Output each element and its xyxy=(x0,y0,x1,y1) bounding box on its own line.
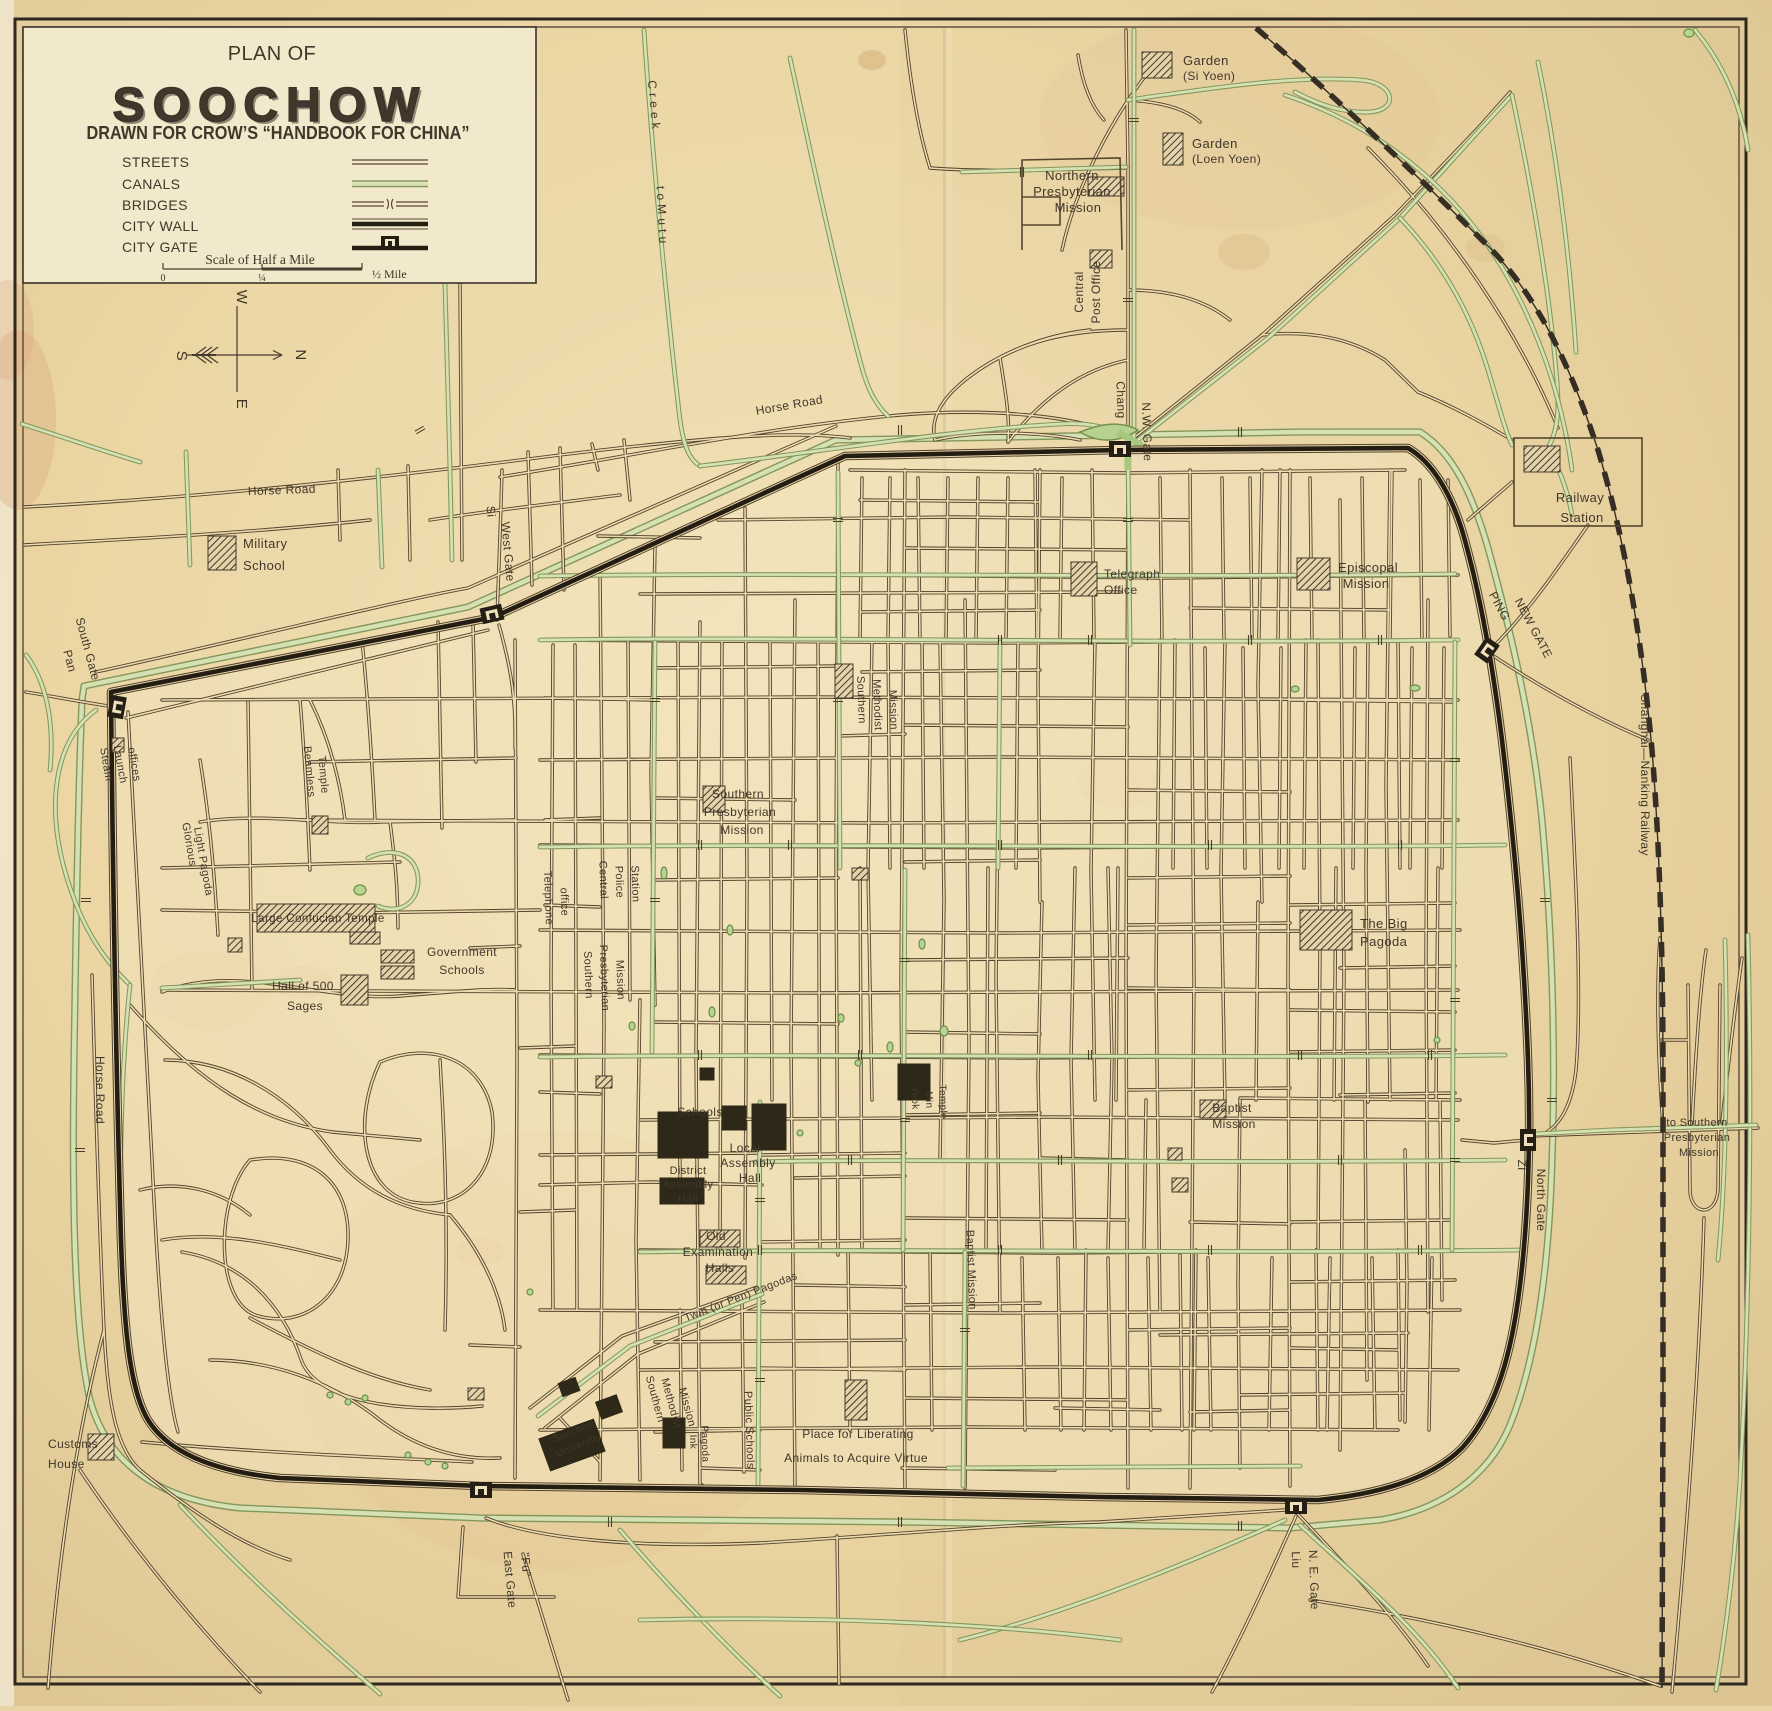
svg-text:Large Confucian Temple: Large Confucian Temple xyxy=(251,913,384,925)
svg-text:Scale of Half a Mile: Scale of Half a Mile xyxy=(205,252,314,267)
svg-text:Hall: Hall xyxy=(678,1193,699,1205)
svg-text:Sages: Sages xyxy=(287,999,323,1013)
svg-text:to Southern: to Southern xyxy=(1666,1117,1727,1129)
svg-text:BRIDGES: BRIDGES xyxy=(122,197,188,213)
svg-text:Yook: Yook xyxy=(909,1086,921,1110)
svg-text:Chang: Chang xyxy=(1113,381,1128,419)
svg-text:Schools: Schools xyxy=(677,1105,723,1119)
svg-text:Mission: Mission xyxy=(886,690,899,730)
svg-text:"Fu": "Fu" xyxy=(518,1552,534,1577)
svg-text:Central: Central xyxy=(596,861,609,900)
svg-text:Mission: Mission xyxy=(720,823,763,837)
svg-text:N. E. Gate: N. E. Gate xyxy=(1306,1550,1322,1610)
svg-text:Southern: Southern xyxy=(712,787,764,801)
svg-text:Station: Station xyxy=(1560,510,1603,525)
svg-text:(Loen Yoen): (Loen Yoen) xyxy=(1192,152,1261,166)
svg-text:Zi: Zi xyxy=(1515,1160,1529,1171)
svg-text:S: S xyxy=(173,351,190,361)
svg-text:Halls: Halls xyxy=(706,1261,735,1275)
svg-text:N.W. Gate: N.W. Gate xyxy=(1139,402,1155,461)
svg-text:Mission: Mission xyxy=(613,960,626,1000)
svg-text:Presbyterian: Presbyterian xyxy=(597,944,611,1011)
svg-text:Horse Road: Horse Road xyxy=(93,1056,107,1124)
svg-text:Northern: Northern xyxy=(1045,168,1099,183)
svg-text:(Si Yoen): (Si Yoen) xyxy=(1183,69,1235,83)
svg-text:Telegraph: Telegraph xyxy=(1104,567,1160,581)
svg-text:office: office xyxy=(558,887,571,916)
svg-text:Examination: Examination xyxy=(683,1245,753,1259)
svg-text:Railway: Railway xyxy=(1556,490,1604,505)
svg-text:¼: ¼ xyxy=(258,273,266,284)
svg-text:Episcopal: Episcopal xyxy=(1338,560,1398,575)
svg-text:W: W xyxy=(233,290,250,305)
svg-text:Pagoda: Pagoda xyxy=(1360,934,1408,949)
svg-text:Mission: Mission xyxy=(1343,576,1390,591)
svg-text:Place for Liberating: Place for Liberating xyxy=(802,1427,913,1441)
svg-text:Mission: Mission xyxy=(1055,200,1102,215)
svg-text:Police: Police xyxy=(612,866,625,899)
svg-text:Old: Old xyxy=(706,1229,726,1243)
svg-text:Mission: Mission xyxy=(1212,1117,1255,1131)
svg-text:CITY GATE: CITY GATE xyxy=(122,239,198,255)
svg-text:North Gate: North Gate xyxy=(1534,1169,1548,1232)
svg-text:Ink: Ink xyxy=(687,1434,699,1450)
svg-text:House: House xyxy=(48,1457,85,1471)
svg-text:Presbyterian: Presbyterian xyxy=(704,805,776,819)
svg-text:PLAN OF: PLAN OF xyxy=(228,43,316,65)
svg-text:Schools: Schools xyxy=(439,963,485,977)
svg-text:CANALS: CANALS xyxy=(122,176,180,192)
svg-text:E: E xyxy=(233,399,250,409)
svg-text:Si: Si xyxy=(484,505,499,518)
svg-text:Hall of 500: Hall of 500 xyxy=(272,979,334,993)
svg-text:Southern: Southern xyxy=(581,951,595,999)
svg-text:Liu: Liu xyxy=(1289,1551,1304,1569)
svg-text:Southern: Southern xyxy=(854,676,868,724)
svg-text:0: 0 xyxy=(161,273,166,284)
svg-text:Pagoda: Pagoda xyxy=(698,1425,710,1462)
svg-text:District: District xyxy=(670,1165,707,1177)
svg-text:CITY WALL: CITY WALL xyxy=(122,218,199,234)
svg-text:Local: Local xyxy=(730,1141,761,1155)
svg-text:Military: Military xyxy=(243,536,287,551)
svg-text:Station: Station xyxy=(628,865,641,902)
svg-text:Central: Central xyxy=(1072,271,1086,312)
svg-text:Customs: Customs xyxy=(48,1437,98,1451)
svg-text:DRAWN FOR CROW’S “HANDBOOK FOR: DRAWN FOR CROW’S “HANDBOOK FOR CHINA” xyxy=(86,122,469,143)
svg-text:Methodist: Methodist xyxy=(870,679,884,731)
svg-text:Presbyterian: Presbyterian xyxy=(1664,1132,1731,1144)
svg-text:The Big: The Big xyxy=(1360,916,1408,931)
svg-text:Garden: Garden xyxy=(1183,53,1229,68)
svg-text:Assembly: Assembly xyxy=(720,1156,775,1170)
svg-text:Shanghai—Nanking Railway: Shanghai—Nanking Railway xyxy=(1638,694,1652,856)
svg-text:Office: Office xyxy=(1104,583,1138,597)
svg-text:Animals to Acquire Virtue: Animals to Acquire Virtue xyxy=(784,1451,928,1465)
svg-text:School: School xyxy=(243,558,285,573)
svg-text:Horse Road: Horse Road xyxy=(248,482,316,498)
svg-text:Baptist: Baptist xyxy=(1212,1101,1252,1115)
svg-text:Garden: Garden xyxy=(1192,136,1238,151)
svg-text:Mission: Mission xyxy=(1679,1147,1719,1159)
svg-text:Temple: Temple xyxy=(936,1084,948,1119)
svg-text:Government: Government xyxy=(427,945,497,959)
svg-text:Post Office: Post Office xyxy=(1089,261,1103,324)
svg-text:N: N xyxy=(292,349,309,360)
svg-text:Presbyterian: Presbyterian xyxy=(1033,184,1111,199)
svg-text:Telephone: Telephone xyxy=(541,871,555,926)
svg-text:Min: Min xyxy=(923,1091,935,1109)
svg-text:STREETS: STREETS xyxy=(122,154,189,170)
svg-text:Hall: Hall xyxy=(739,1171,761,1185)
svg-text:Assembly: Assembly xyxy=(663,1179,714,1191)
svg-text:½ Mile: ½ Mile xyxy=(372,267,407,281)
